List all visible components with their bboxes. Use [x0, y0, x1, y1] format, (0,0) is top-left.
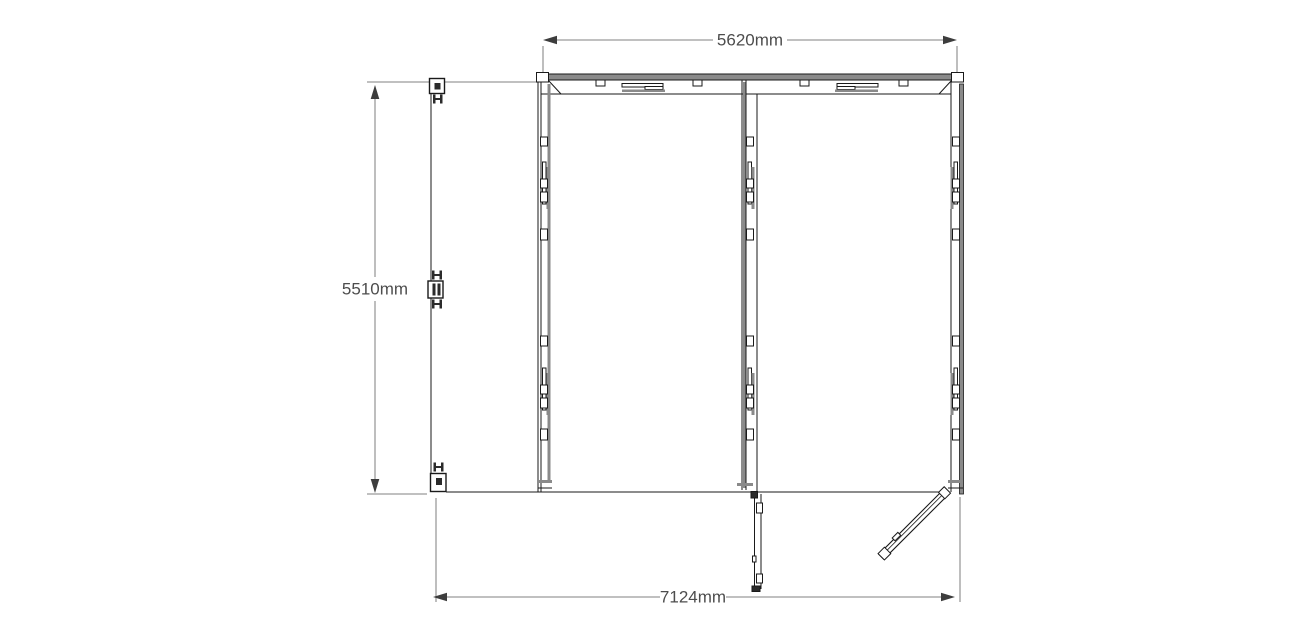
- left-wall: [538, 82, 552, 493]
- front-door-leaf-down: [751, 492, 763, 592]
- wall-girt: [835, 84, 878, 93]
- arrow-down-icon: [371, 479, 380, 493]
- divider-wall: [737, 80, 757, 493]
- wall-clip: [953, 229, 960, 240]
- wall-clip: [747, 229, 754, 240]
- arrow-left-icon: [433, 593, 447, 602]
- wall-clip: [747, 336, 754, 346]
- wall-clip: [596, 80, 605, 86]
- wall-clip: [541, 137, 548, 146]
- wall-girt: [747, 368, 755, 415]
- arrow-right-icon: [943, 36, 957, 45]
- corner-post-top-left: [537, 73, 549, 83]
- dimension-bottom: 7124mm: [433, 588, 955, 607]
- wall-clip: [693, 80, 702, 86]
- wall-girt: [951, 368, 960, 415]
- wall-clip: [747, 137, 754, 146]
- wall-girt: [747, 162, 755, 209]
- wall-clip: [541, 336, 548, 346]
- dimension-extension-lines: [367, 46, 960, 602]
- wall-clip: [800, 80, 809, 86]
- dimension-left: 5510mm: [342, 85, 408, 493]
- dimension-left-label: 5510mm: [342, 280, 408, 299]
- wall-clip: [541, 229, 548, 240]
- wall-girt: [541, 368, 550, 415]
- wall-clip: [541, 429, 548, 440]
- right-wall: [948, 82, 964, 495]
- wall-girt: [951, 162, 960, 209]
- wall-clip: [899, 80, 908, 86]
- floor-plan-drawing: 5620mm 5510mm 7124mm: [0, 0, 1294, 624]
- arrow-right-icon: [941, 593, 955, 602]
- wall-clip: [953, 429, 960, 440]
- dimension-top-label: 5620mm: [717, 31, 783, 50]
- wall-clip: [747, 429, 754, 440]
- front-door-leaf-diagonal: [877, 486, 951, 560]
- arrow-up-icon: [371, 85, 380, 99]
- arrow-left-icon: [543, 36, 557, 45]
- hinge-bottom-icon: [431, 463, 447, 492]
- wall-clip: [953, 336, 960, 346]
- wall-girt: [541, 162, 550, 209]
- hinge-middle-icon: [428, 271, 443, 309]
- corner-post-top-right: [952, 73, 964, 83]
- building-plan: [428, 73, 964, 592]
- dimension-bottom-label: 7124mm: [660, 588, 726, 607]
- wall-girt: [622, 84, 665, 93]
- left-side-door-open: [428, 79, 446, 492]
- dimension-top: 5620mm: [543, 31, 957, 50]
- top-wall: [537, 73, 964, 95]
- wall-clip: [953, 137, 960, 146]
- floor-plan-canvas: 5620mm 5510mm 7124mm: [0, 0, 1294, 624]
- hinge-top-icon: [430, 79, 445, 104]
